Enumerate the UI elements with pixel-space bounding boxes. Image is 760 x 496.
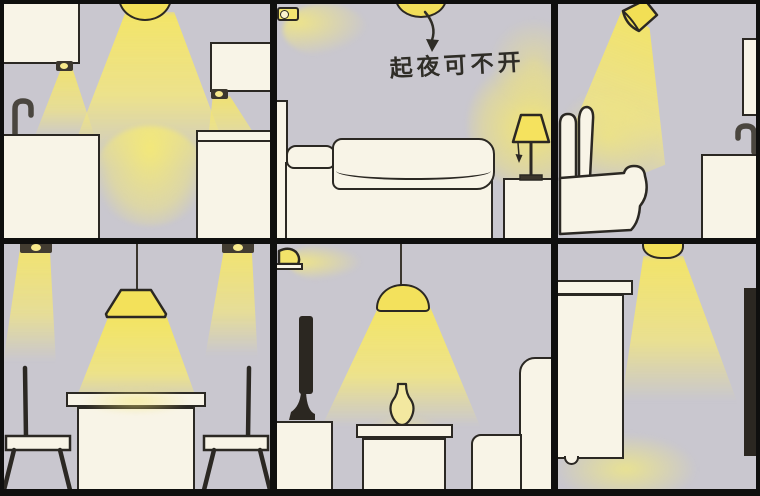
living-side-table-body: [362, 438, 446, 489]
fridge-body: [558, 294, 624, 459]
bed-pillow: [286, 145, 336, 169]
living-pendant-cord: [400, 244, 402, 285]
toilet: [558, 102, 662, 238]
kitchen-upper-cabinet-left: [4, 4, 80, 64]
duvet-fold-line: [336, 169, 491, 180]
nightstand: [503, 178, 551, 238]
dining-table-light-wash: [84, 388, 188, 414]
panel-utility: [558, 244, 756, 489]
dining-table-body: [77, 407, 195, 489]
dining-chair-right: [198, 364, 270, 489]
dining-pendant-cord: [136, 244, 138, 291]
dining-chair-left: [4, 364, 76, 489]
living-pendant-shade: [376, 284, 430, 312]
panel-bathroom: [558, 4, 756, 238]
tv-cabinet: [277, 421, 333, 489]
kitchen-undercabinet-fixture-left: [56, 61, 73, 71]
kitchen-counter-right: [196, 130, 270, 238]
utility-light-cone: [614, 256, 742, 408]
spot-bulb: [233, 244, 243, 251]
dining-spot-cone-left: [4, 250, 66, 368]
panel-kitchen: [4, 4, 270, 238]
counter-slab-line: [198, 140, 270, 142]
wall-night-lamp-bulb: [280, 10, 289, 19]
dark-wall-panel: [744, 288, 756, 456]
sofa-backrest: [519, 357, 551, 489]
panel-dining: [4, 244, 270, 489]
vase: [385, 382, 419, 428]
spot-bulb: [31, 244, 41, 251]
living-side-table-top: [356, 424, 453, 438]
panel-living: [277, 244, 551, 489]
fridge-top-slab: [558, 280, 633, 295]
kitchen-undercabinet-fixture-right: [211, 89, 228, 99]
dining-pendant-shade: [104, 289, 168, 320]
bedside-table-lamp: [502, 112, 551, 184]
living-wall-lamp: [277, 247, 307, 273]
kitchen-light-pool: [94, 126, 206, 226]
kitchen-counter-left: [4, 134, 100, 238]
bathroom-faucet: [730, 120, 756, 156]
sofa-seat: [471, 434, 522, 489]
bed-duvet: [332, 138, 495, 190]
fixture-bulb-dot: [60, 63, 68, 69]
tv-side-view: [285, 314, 319, 422]
dining-spot-cone-right: [196, 250, 264, 362]
dining-spot-fixture-right: [222, 244, 254, 253]
bathroom-sink-counter: [701, 154, 756, 238]
panel-bedroom: 起夜可不开: [277, 4, 551, 238]
kitchen-upper-cabinet-right: [210, 42, 270, 92]
wall-night-lamp: [277, 7, 299, 21]
bathroom-mirror: [742, 38, 756, 116]
lighting-comic: 起夜可不开: [0, 0, 760, 496]
dining-spot-fixture-left: [20, 244, 52, 253]
bathroom-pendant-lamp: [616, 4, 662, 38]
fixture-bulb-dot: [215, 91, 223, 97]
